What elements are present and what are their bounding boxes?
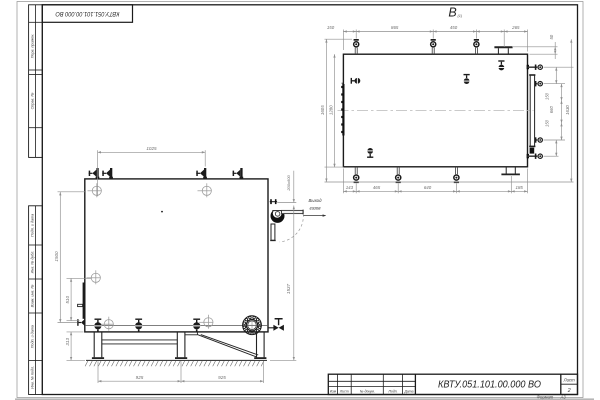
svg-text:143: 143 (346, 185, 354, 190)
svg-text:Подп. и дата: Подп. и дата (30, 325, 34, 348)
svg-text:150: 150 (545, 92, 550, 100)
svg-text:Инв. № дубл.: Инв. № дубл. (30, 251, 34, 274)
svg-text:газов: газов (310, 205, 322, 210)
svg-text:450: 450 (450, 25, 458, 30)
svg-text:200х600: 200х600 (286, 175, 291, 192)
svg-text:Перв. примен.: Перв. примен. (30, 34, 34, 59)
svg-text:925: 925 (218, 375, 226, 380)
svg-text:150: 150 (327, 25, 335, 30)
svg-text:Изм: Изм (330, 390, 337, 394)
svg-text:(1): (1) (457, 14, 462, 18)
svg-text:Лист: Лист (563, 378, 575, 383)
svg-text:КВТУ.051.101.00.000 ВО: КВТУ.051.101.00.000 ВО (55, 10, 119, 16)
svg-text:660: 660 (549, 106, 554, 114)
svg-text:Формат: Формат (537, 394, 554, 399)
svg-text:1280: 1280 (328, 105, 333, 115)
svg-text:Подп. и дата: Подп. и дата (30, 214, 34, 237)
svg-text:Взам. инв. №: Взам. инв. № (30, 285, 34, 308)
svg-text:185: 185 (516, 185, 524, 190)
svg-text:640: 640 (424, 185, 432, 190)
svg-text:№ докум.: № докум. (360, 390, 375, 394)
svg-text:Дата: Дата (404, 390, 414, 394)
svg-text:Подп.: Подп. (388, 390, 397, 394)
svg-text:КВТУ.051.101.00.000 ВО: КВТУ.051.101.00.000 ВО (438, 380, 541, 391)
svg-text:1630: 1630 (565, 105, 570, 115)
svg-text:А3: А3 (560, 394, 567, 399)
svg-text:150: 150 (545, 119, 550, 127)
svg-text:В: В (448, 5, 456, 19)
svg-text:865: 865 (391, 25, 399, 30)
svg-text:925: 925 (136, 375, 144, 380)
svg-text:1500: 1500 (54, 251, 59, 262)
svg-text:1537: 1537 (286, 283, 291, 294)
svg-text:Лист: Лист (339, 390, 349, 394)
svg-text:50: 50 (549, 34, 554, 39)
svg-text:265: 265 (511, 25, 520, 30)
svg-text:Выход: Выход (309, 198, 323, 203)
svg-text:Справ. №: Справ. № (30, 93, 34, 110)
svg-text:1605: 1605 (320, 105, 325, 115)
svg-text:1025: 1025 (146, 146, 157, 151)
svg-text:2: 2 (567, 388, 571, 394)
svg-text:510: 510 (65, 296, 70, 304)
svg-text:465: 465 (373, 185, 381, 190)
svg-text:313: 313 (65, 338, 70, 346)
svg-text:Инв. № подл.: Инв. № подл. (30, 366, 34, 389)
